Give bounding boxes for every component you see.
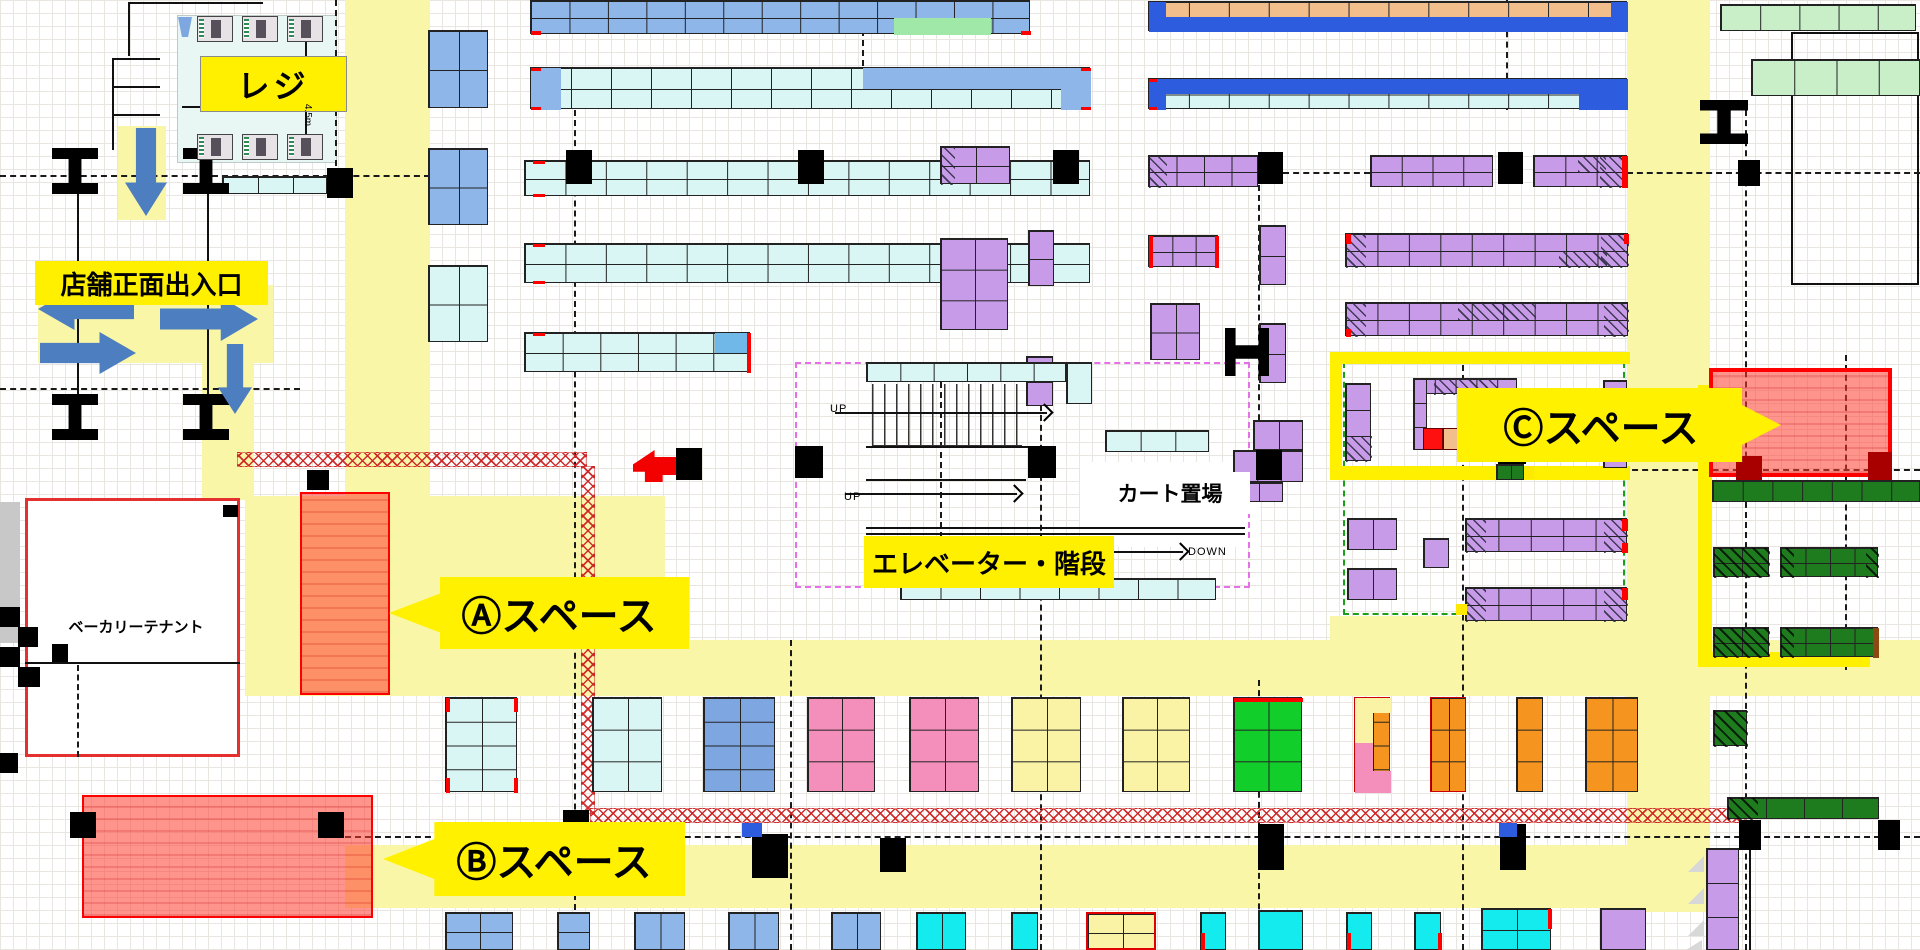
dh <box>1283 172 1370 174</box>
front-entrance-label: 店舗正面出入口 <box>35 261 268 305</box>
shelf-segment <box>1355 698 1391 713</box>
yellow-cell <box>1456 604 1467 615</box>
shelf-segment <box>1579 79 1628 110</box>
hatch-cell <box>1714 628 1770 658</box>
shelf-block <box>428 265 488 342</box>
gondola <box>807 697 875 792</box>
space-b-label: Ⓑスペース <box>456 830 651 888</box>
shelf-segment <box>1355 743 1373 771</box>
pil <box>18 627 38 647</box>
shelf-row <box>1720 4 1916 31</box>
shelf-segment <box>514 778 518 793</box>
shelf-segment <box>1215 236 1219 268</box>
pil <box>1028 446 1056 478</box>
shelf-segment <box>1081 107 1091 110</box>
shelf-segment <box>747 333 751 373</box>
hatch-cell <box>1728 798 1758 820</box>
hatch-cell <box>1781 548 1794 578</box>
gondola <box>592 697 662 792</box>
shelf-block <box>1150 303 1200 360</box>
lh <box>866 479 1026 481</box>
dh <box>1627 172 1920 174</box>
shelf-segment <box>514 698 518 712</box>
shelf-segment <box>533 194 545 197</box>
green-strip <box>1712 480 1920 502</box>
shelf-column <box>1028 230 1054 286</box>
register-icon <box>242 134 278 160</box>
pil <box>1878 820 1900 850</box>
shelf-row <box>1148 155 1258 187</box>
register-icon <box>287 16 323 42</box>
blue-cap <box>1499 823 1517 837</box>
cart-storage-label: カート置場 <box>1090 472 1250 514</box>
shelf-row <box>1345 233 1628 267</box>
lh <box>866 446 1046 448</box>
fence-bottom <box>590 808 1745 823</box>
gondola <box>445 697 517 792</box>
green-shelf <box>1713 627 1769 657</box>
bottom-shelf <box>1600 908 1646 950</box>
shelf-segment <box>1346 234 1351 244</box>
dark-red-pillar <box>1868 452 1892 480</box>
ib <box>52 394 98 440</box>
up-text-1: UP <box>830 403 847 415</box>
shelf-segment <box>1149 79 1166 110</box>
lh <box>866 533 1245 535</box>
pil <box>307 470 329 490</box>
hatch-cell <box>1149 156 1167 188</box>
shelf-segment <box>1149 79 1157 82</box>
shelf-segment <box>1355 713 1373 743</box>
bottom-shelf <box>1086 912 1156 950</box>
rack-column <box>1706 848 1739 950</box>
shelf-segment <box>1355 771 1391 793</box>
bottom-right-wall <box>1749 838 1751 950</box>
bottom-shelf <box>916 912 966 950</box>
shelf-segment <box>533 281 545 284</box>
gondola <box>909 697 979 792</box>
bakery-divider <box>25 662 240 664</box>
shelf-segment <box>533 161 545 164</box>
pil <box>327 168 353 198</box>
space-a-area <box>300 492 390 695</box>
lh <box>112 58 160 60</box>
shelf-row <box>1345 302 1628 336</box>
hatch-cell <box>1466 519 1486 553</box>
shelf-segment <box>1149 79 1628 94</box>
shelf-block <box>940 238 1008 330</box>
bottom-shelf <box>1200 912 1226 950</box>
lv <box>112 58 114 150</box>
shelf-segment <box>531 31 541 35</box>
pil <box>1256 450 1282 480</box>
shelf-row <box>1148 78 1627 109</box>
shelf-strip <box>222 176 327 194</box>
shelf-block <box>940 146 1010 184</box>
lh <box>128 2 263 4</box>
shelf-segment <box>1622 519 1628 531</box>
hatch-cell <box>1714 711 1748 747</box>
shelf-segment <box>446 698 450 712</box>
shelf-row <box>524 332 750 372</box>
gondola <box>1585 697 1638 792</box>
shelf-segment <box>533 333 545 336</box>
stairs-top-strip <box>866 362 1066 382</box>
bottom-shelf <box>1258 910 1303 950</box>
shelf-column <box>1259 225 1286 285</box>
shelf-row <box>1751 59 1920 96</box>
green-strip <box>1727 797 1879 819</box>
red-cell <box>1423 428 1443 450</box>
green-shelf <box>1780 547 1878 577</box>
elevator-stairs-label: エレベーター・階段 <box>864 536 1114 588</box>
pil <box>318 812 344 838</box>
shelf-segment <box>1611 2 1628 32</box>
shelf-segment <box>1622 156 1628 188</box>
shelf-block <box>428 30 488 108</box>
shelf-segment <box>1149 236 1153 268</box>
register-icon <box>242 16 278 42</box>
gondola <box>1354 697 1390 792</box>
space-a-label: Ⓐスペース <box>461 584 656 642</box>
pil <box>18 667 40 687</box>
green-cells <box>1496 464 1524 480</box>
shelf-block <box>428 148 488 225</box>
shelf-segment <box>1149 17 1628 32</box>
pil <box>566 150 592 184</box>
shelf-segment <box>531 68 561 110</box>
shelf-segment <box>1622 543 1628 553</box>
shelf-segment <box>1548 909 1552 929</box>
hatch-cell <box>1559 251 1607 268</box>
bottom-shelf <box>1414 912 1441 950</box>
gondola <box>1233 697 1302 792</box>
hatch-cell <box>1346 436 1372 462</box>
cart-strip <box>1105 430 1209 452</box>
shelf-segment <box>531 68 541 71</box>
shelf-segment <box>1347 933 1351 950</box>
shelf-segment <box>1438 933 1442 950</box>
gondola <box>1011 697 1081 792</box>
bottom-shelf <box>1481 908 1551 950</box>
shelf-segment <box>1149 107 1157 110</box>
pil <box>676 448 702 480</box>
down-text: DOWN <box>1188 546 1227 558</box>
shelf-segment <box>1873 628 1879 658</box>
gondola <box>1122 697 1190 792</box>
gondola <box>1516 697 1543 792</box>
shelf-block <box>1347 568 1397 600</box>
corridor-vertical-left <box>345 0 430 500</box>
hatch-cell <box>1714 548 1770 578</box>
pil <box>0 647 20 667</box>
shelf-segment <box>1622 588 1628 600</box>
dh <box>0 388 300 390</box>
shelf-segment <box>533 244 545 247</box>
pil <box>223 505 238 517</box>
pil <box>798 150 824 184</box>
hatch-cell <box>1604 303 1629 337</box>
bottom-shelf <box>634 912 685 950</box>
shelf-row <box>1370 155 1493 187</box>
pil <box>1258 824 1284 870</box>
register-icon <box>287 134 323 160</box>
pil <box>1739 820 1761 850</box>
pil <box>1258 152 1283 184</box>
register-icon <box>197 134 233 160</box>
register-icon <box>197 16 233 42</box>
stairs-end-cell <box>1066 362 1092 404</box>
pil <box>795 446 823 478</box>
up-arrow-line <box>845 493 1017 495</box>
bottom-shelf <box>728 912 779 950</box>
up-text-2: UP <box>844 491 861 503</box>
pil <box>70 812 96 838</box>
pil <box>1498 152 1523 184</box>
bottom-shelf <box>557 912 590 950</box>
shelf-segment <box>531 107 541 110</box>
rack-hook <box>1688 920 1704 936</box>
hatch-cell <box>1781 628 1794 658</box>
space-c-label: Ⓒスペース <box>1503 396 1698 454</box>
pil <box>1738 160 1760 186</box>
lh <box>866 527 1245 529</box>
pil <box>752 834 788 878</box>
lh <box>112 114 160 116</box>
shelf-block <box>1423 538 1449 568</box>
pil <box>880 838 906 872</box>
cspace-yellow-top <box>1330 352 1630 364</box>
dimension-label: 4.5m <box>301 95 315 135</box>
hatch-cell <box>1866 548 1879 578</box>
dv <box>574 110 576 910</box>
bakery-dash <box>77 665 79 757</box>
shelf-segment <box>446 778 450 793</box>
shelf-segment <box>1149 2 1166 32</box>
bottom-shelf <box>445 912 513 950</box>
bottom-shelf <box>831 912 881 950</box>
shelf-segment <box>1624 234 1629 244</box>
shelf-row <box>1148 1 1627 31</box>
cspace-yellow-left <box>1330 352 1342 478</box>
lh <box>112 86 160 88</box>
hatch-cell <box>1458 303 1536 320</box>
shelf-segment <box>1081 68 1091 71</box>
pil <box>52 644 68 662</box>
dv <box>790 640 792 950</box>
shelf-row <box>1465 587 1627 621</box>
store-floor-plan: レジ 4.5m 店舗正面出入口 エレベーター・階段 カート置場 ベーカリーテナン… <box>0 0 1920 950</box>
lv <box>128 2 130 56</box>
shelf-block <box>1148 235 1218 267</box>
shelf-segment <box>894 18 991 35</box>
ib <box>52 148 98 194</box>
pil <box>0 753 18 773</box>
shelf-row <box>530 0 1030 34</box>
fence-a-top <box>237 452 587 467</box>
gondola <box>1430 697 1466 792</box>
shelf-row <box>1533 155 1627 187</box>
shelf-block <box>1347 518 1397 550</box>
shelf-column <box>1345 383 1371 461</box>
shelf-segment <box>1061 68 1091 110</box>
shelf-segment <box>1201 933 1205 950</box>
shelf-segment <box>863 68 1063 89</box>
register-label: レジ <box>200 56 347 112</box>
bottom-shelf <box>1346 912 1372 950</box>
shelf-row <box>1465 518 1627 552</box>
gondola <box>703 697 775 792</box>
bakery-tenant-label: ベーカリーテナント <box>52 613 220 639</box>
green-shelf <box>1780 627 1878 657</box>
rack-hook <box>1686 940 1702 950</box>
pil <box>0 607 20 627</box>
hatch-cell <box>1466 588 1486 622</box>
shelf-segment <box>715 333 751 353</box>
yellow-cell <box>1524 466 1534 479</box>
dh <box>0 175 430 177</box>
cspace-yellow-bottom <box>1330 466 1630 480</box>
bottom-shelf <box>1011 912 1038 950</box>
shelf-block <box>1253 420 1303 450</box>
shelf-segment <box>1234 698 1303 702</box>
shelf-segment <box>1021 31 1031 35</box>
blue-cap <box>742 823 762 837</box>
shelf-segment <box>1346 329 1351 337</box>
stair-treads <box>872 384 1022 446</box>
green-shelf <box>1713 547 1769 577</box>
green-shelf <box>1713 710 1747 746</box>
space-c-callout: Ⓒスペース <box>1457 388 1781 462</box>
hatch-cell <box>941 147 955 185</box>
up-arrow-line <box>835 412 1047 414</box>
shelf-row <box>530 67 1090 109</box>
pil <box>1053 150 1079 184</box>
